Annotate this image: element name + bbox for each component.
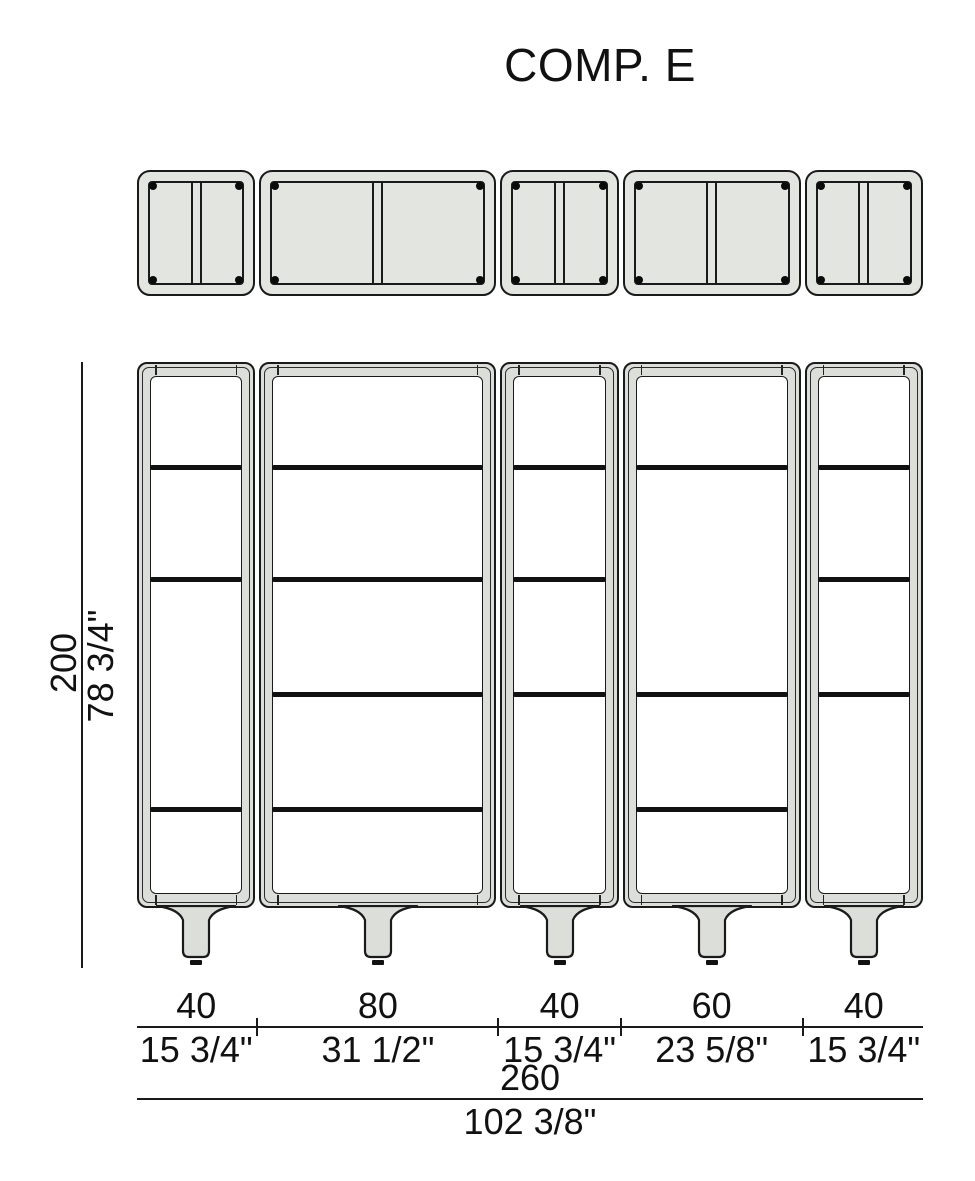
rail-tick <box>518 365 520 375</box>
dimension-tick <box>256 1018 258 1036</box>
leg-wrap <box>672 905 752 967</box>
joint-dot <box>149 182 157 190</box>
leg <box>824 905 904 967</box>
total-inches-label: 102 3/8" <box>464 1104 597 1140</box>
leg-foot <box>706 960 718 965</box>
segment-inches-label: 31 1/2" <box>321 1032 434 1068</box>
joint-dot <box>817 276 825 284</box>
plan-module <box>623 170 801 296</box>
module-divider <box>372 181 383 285</box>
leg-wrap <box>156 905 236 967</box>
segment-cm-label: 40 <box>540 988 580 1024</box>
shelf-line <box>513 465 605 470</box>
rail-tick <box>155 895 157 905</box>
leg <box>520 905 600 967</box>
shelf-line <box>636 807 788 812</box>
plan-module <box>137 170 255 296</box>
plan-module <box>259 170 496 296</box>
joint-dot <box>781 276 789 284</box>
segment-cm-label: 40 <box>176 988 216 1024</box>
shelf-line <box>818 465 910 470</box>
rail-tick <box>477 365 479 375</box>
segment-inches-label: 15 3/4" <box>140 1032 253 1068</box>
rail-tick <box>277 365 279 375</box>
joint-dot <box>149 276 157 284</box>
shelf-line <box>272 692 483 697</box>
segment-dimension-line <box>137 1026 923 1028</box>
height-cm-label: 200 <box>46 633 82 693</box>
segment-cm-label: 40 <box>844 988 884 1024</box>
rail-tick <box>641 365 643 375</box>
shelf-line <box>272 807 483 812</box>
joint-dot <box>903 276 911 284</box>
total-cm-label: 260 <box>500 1060 560 1096</box>
unit-interior <box>150 376 242 894</box>
leg <box>156 905 236 967</box>
shelf-line <box>150 465 242 470</box>
joint-dot <box>781 182 789 190</box>
shelf-unit <box>137 362 255 908</box>
rail-tick <box>155 365 157 375</box>
segment-inches-label: 15 3/4" <box>807 1032 920 1068</box>
rail-tick <box>823 895 825 905</box>
leg <box>338 905 418 967</box>
shelf-line <box>818 577 910 582</box>
joint-dot <box>599 182 607 190</box>
rail-tick <box>477 895 479 905</box>
dimension-tick <box>497 1018 499 1036</box>
joint-dot <box>635 276 643 284</box>
rail-tick <box>599 365 601 375</box>
leg-foot <box>190 960 202 965</box>
shelf-line <box>818 692 910 697</box>
module-divider <box>191 181 202 285</box>
shelf-unit <box>805 362 923 908</box>
unit-interior <box>513 376 605 894</box>
segment-inches-label: 23 5/8" <box>655 1032 768 1068</box>
technical-drawing: COMP. E 200 78 3/4" 4015 3/4"8031 1/2"40… <box>0 0 975 1181</box>
shelf-line <box>513 692 605 697</box>
leg-foot <box>858 960 870 965</box>
unit-interior <box>636 376 788 894</box>
segment-inches-label: 15 3/4" <box>503 1032 616 1068</box>
rail-tick <box>599 895 601 905</box>
leg-wrap <box>824 905 904 967</box>
module-divider <box>706 181 717 285</box>
dimension-tick <box>620 1018 622 1036</box>
shelf-unit <box>259 362 496 908</box>
page-title: COMP. E <box>504 40 696 91</box>
module-divider <box>858 181 869 285</box>
rail-tick <box>781 365 783 375</box>
rail-tick <box>277 895 279 905</box>
front-view-row <box>137 362 923 908</box>
rail-tick <box>236 895 238 905</box>
unit-interior <box>272 376 483 894</box>
dimension-tick <box>802 1018 804 1036</box>
rail-tick <box>641 895 643 905</box>
rail-tick <box>903 895 905 905</box>
shelf-line <box>513 577 605 582</box>
height-inches-label: 78 3/4" <box>83 610 119 723</box>
joint-dot <box>599 276 607 284</box>
shelf-line <box>636 465 788 470</box>
leg-foot <box>372 960 384 965</box>
rail-tick <box>781 895 783 905</box>
unit-interior <box>818 376 910 894</box>
leg-foot <box>554 960 566 965</box>
shelf-line <box>272 465 483 470</box>
plan-module <box>500 170 618 296</box>
joint-dot <box>635 182 643 190</box>
top-view-row <box>137 170 923 296</box>
shelf-line <box>150 807 242 812</box>
segment-cm-label: 60 <box>692 988 732 1024</box>
rail-tick <box>236 365 238 375</box>
joint-dot <box>817 182 825 190</box>
leg-wrap <box>338 905 418 967</box>
shelf-line <box>636 692 788 697</box>
rail-tick <box>518 895 520 905</box>
shelf-unit <box>623 362 801 908</box>
shelf-unit <box>500 362 618 908</box>
shelf-line <box>272 577 483 582</box>
leg <box>672 905 752 967</box>
rail-tick <box>903 365 905 375</box>
leg-wrap <box>520 905 600 967</box>
total-dimension-line <box>137 1098 923 1100</box>
module-divider <box>554 181 565 285</box>
rail-tick <box>823 365 825 375</box>
segment-cm-label: 80 <box>358 988 398 1024</box>
shelf-line <box>150 577 242 582</box>
joint-dot <box>903 182 911 190</box>
plan-module <box>805 170 923 296</box>
